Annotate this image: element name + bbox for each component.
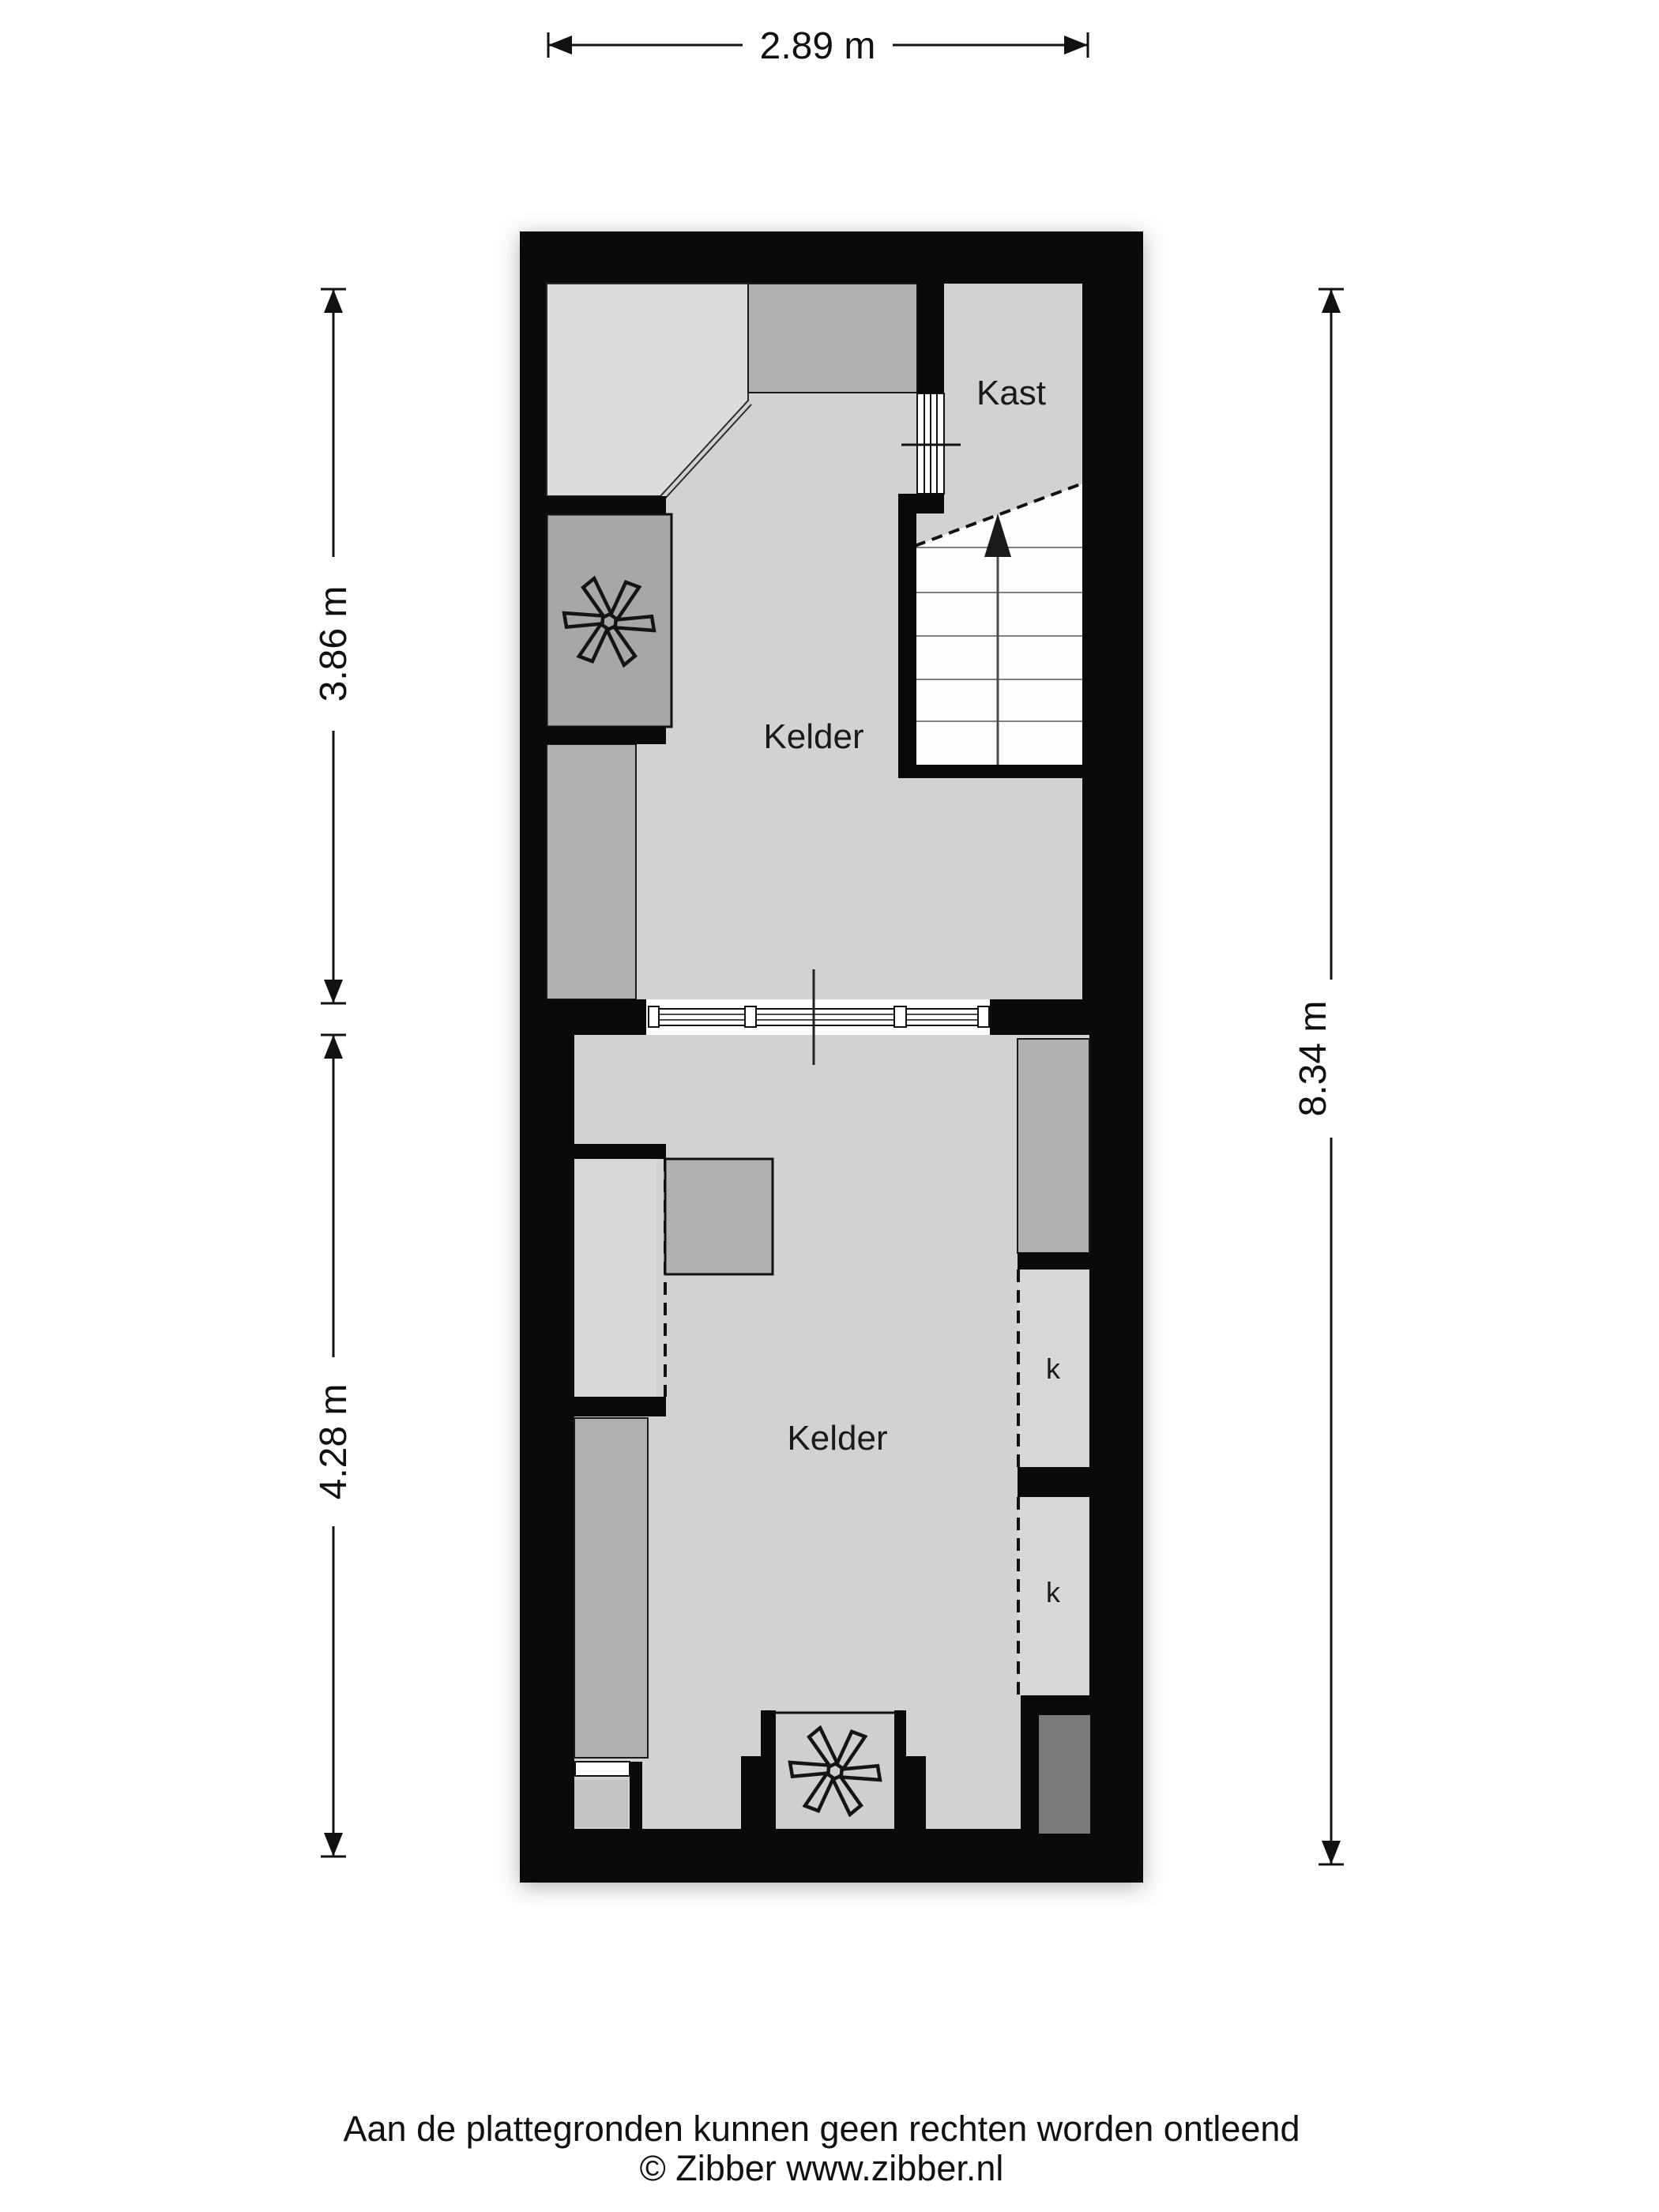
window-icon	[659, 1009, 745, 1025]
room-label-kelder-lower: Kelder	[787, 1419, 887, 1458]
dim-left-upper: 3.86 m	[313, 586, 355, 702]
cupboard-left-upper	[547, 744, 636, 999]
footer-disclaimer: Aan de plattegronden kunnen geen rechten…	[344, 2109, 1300, 2149]
room-label-kelder-upper: Kelder	[763, 717, 863, 756]
recess-left	[574, 1159, 656, 1397]
closet-label-bottom: k	[1046, 1576, 1061, 1608]
window-icon	[756, 1009, 894, 1025]
cupboard-right	[1018, 1039, 1089, 1253]
ledge-bottom-left	[574, 1780, 628, 1827]
dim-top-width: 2.89 m	[760, 25, 876, 67]
cupboard-left-lower	[574, 1418, 648, 1758]
window-post	[745, 1006, 756, 1027]
dim-left-lower: 4.28 m	[313, 1384, 355, 1500]
closet-label-top: k	[1046, 1352, 1061, 1385]
window-post	[649, 1006, 659, 1027]
window-post	[894, 1006, 906, 1027]
floorplan-page: Kast Kelder Kelder k k 2.89 m 3.86 m 4.2…	[0, 0, 1659, 2212]
shaft-dark-room	[1039, 1715, 1090, 1834]
window-post	[978, 1006, 989, 1027]
storage-block-lower	[665, 1159, 773, 1274]
dim-right-total: 8.34 m	[1292, 1001, 1334, 1117]
window-icon	[906, 1009, 978, 1025]
storage-block-top	[748, 284, 917, 393]
window-icon-group	[649, 1006, 989, 1027]
floor-plan: Kast Kelder Kelder k k	[520, 231, 1143, 1883]
footer-copyright: © Zibber www.zibber.nl	[640, 2148, 1004, 2188]
window-strip-bottom-left	[575, 1762, 630, 1776]
room-label-kast: Kast	[976, 374, 1046, 412]
